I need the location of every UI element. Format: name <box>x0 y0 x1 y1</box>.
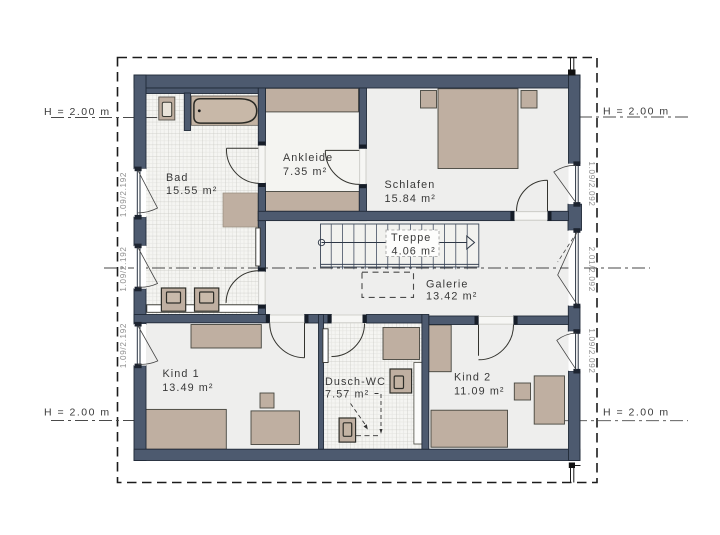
svg-text:13.42 m²: 13.42 m² <box>426 291 477 303</box>
svg-text:Schlafen: Schlafen <box>385 179 436 191</box>
svg-text:Dusch-WC: Dusch-WC <box>325 376 386 388</box>
svg-text:2.01/2.092: 2.01/2.092 <box>587 247 596 292</box>
svg-text:Galerie: Galerie <box>426 279 469 291</box>
svg-text:H = 2.00 m: H = 2.00 m <box>603 106 670 118</box>
svg-text:1.09/2.192: 1.09/2.192 <box>119 172 128 217</box>
svg-text:7.57 m²: 7.57 m² <box>325 389 369 401</box>
svg-text:Kind 1: Kind 1 <box>163 368 200 380</box>
svg-text:11.09 m²: 11.09 m² <box>454 386 505 398</box>
svg-text:H = 2.00 m: H = 2.00 m <box>44 407 111 419</box>
svg-text:4.06 m²: 4.06 m² <box>392 245 436 257</box>
svg-text:Treppe: Treppe <box>391 232 431 244</box>
svg-text:15.55 m²: 15.55 m² <box>166 185 217 197</box>
svg-text:7.35 m²: 7.35 m² <box>283 166 327 178</box>
svg-text:H = 2.00 m: H = 2.00 m <box>44 106 111 118</box>
svg-text:1.09/2.092: 1.09/2.092 <box>587 161 596 206</box>
svg-text:H = 2.00 m: H = 2.00 m <box>603 407 670 419</box>
svg-text:15.84 m²: 15.84 m² <box>385 193 436 205</box>
svg-text:Kind 2: Kind 2 <box>454 372 491 384</box>
svg-text:Ankleide: Ankleide <box>283 152 333 164</box>
svg-text:1.09/2.192: 1.09/2.192 <box>119 246 128 291</box>
svg-text:1.09/2.092: 1.09/2.092 <box>587 328 596 373</box>
svg-text:1.09/2.192: 1.09/2.192 <box>119 323 128 368</box>
svg-text:Bad: Bad <box>166 172 189 184</box>
svg-text:13.49 m²: 13.49 m² <box>162 382 213 394</box>
